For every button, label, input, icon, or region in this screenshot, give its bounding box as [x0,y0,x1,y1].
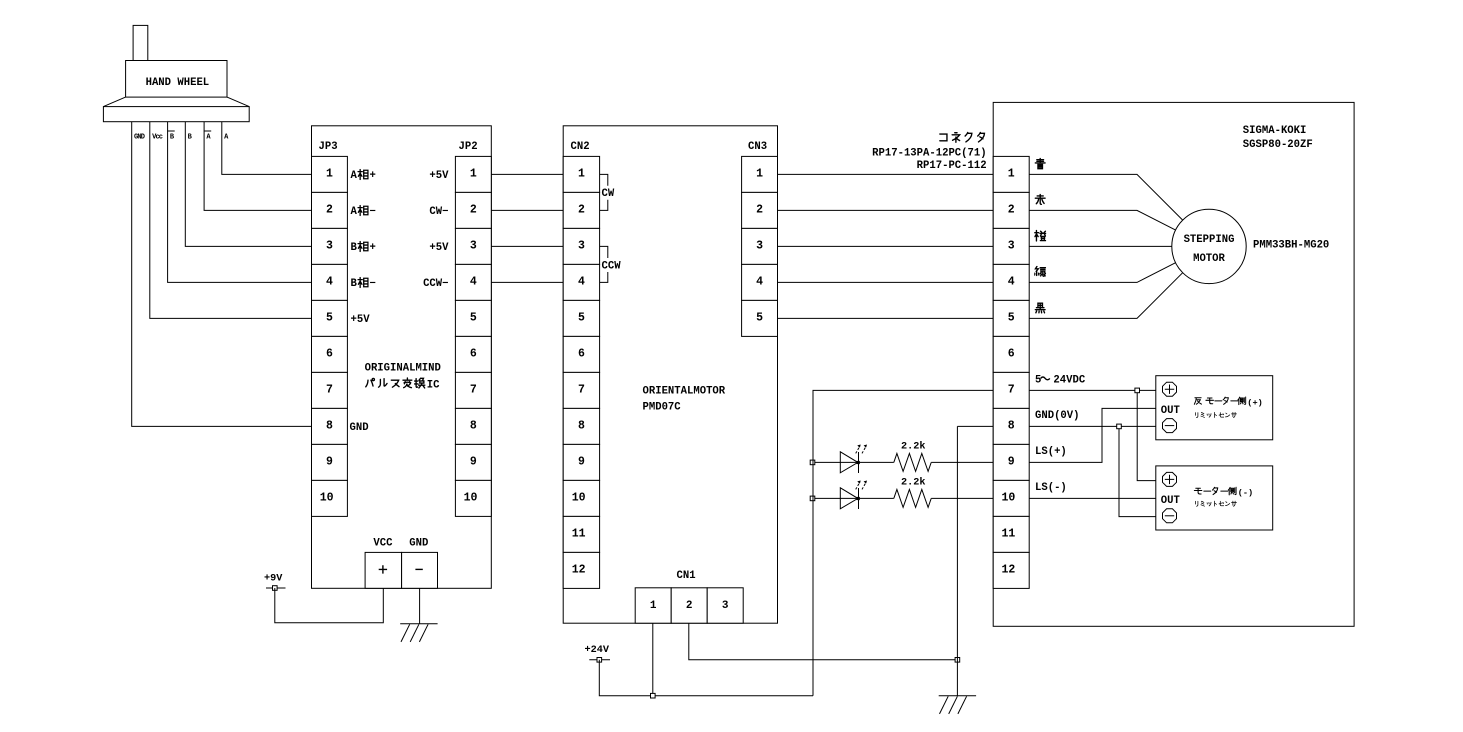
svg-text:5: 5 [470,311,477,324]
svg-text:+5V: +5V [429,170,449,182]
svg-text:6: 6 [470,347,477,360]
svg-text:3: 3 [1008,239,1015,252]
svg-text:1: 1 [578,167,585,180]
svg-text:GND: GND [409,538,428,550]
svg-text:5: 5 [756,311,763,324]
svg-text:7: 7 [470,383,477,396]
svg-text:SIGMA-KOKI: SIGMA-KOKI [1243,125,1307,137]
svg-text:+5V: +5V [351,314,371,326]
svg-text:1: 1 [326,167,333,180]
svg-text:3: 3 [722,600,729,612]
svg-text:A: A [351,206,358,218]
svg-text:8: 8 [578,419,585,432]
svg-text:2: 2 [756,203,763,216]
svg-text:9: 9 [470,455,477,468]
svg-text:2.2k: 2.2k [901,476,925,488]
svg-text:MOTOR: MOTOR [1193,253,1225,265]
svg-text:RP17-13PA-12PC(71): RP17-13PA-12PC(71) [872,147,986,159]
svg-text:CW: CW [602,188,615,200]
svg-text:6: 6 [578,347,585,360]
svg-text:10: 10 [1001,491,1015,504]
svg-text:−: − [370,206,376,218]
svg-text:9: 9 [326,455,333,468]
svg-text:12: 12 [1001,563,1015,576]
svg-text:4: 4 [326,275,333,288]
svg-text:11: 11 [572,527,586,540]
svg-text:10: 10 [572,491,586,504]
svg-text:6: 6 [326,347,333,360]
svg-text:10: 10 [320,491,334,504]
svg-text:12: 12 [572,563,586,576]
svg-text:3: 3 [578,239,585,252]
svg-text:2: 2 [686,600,693,612]
svg-text:GND: GND [134,134,145,142]
svg-text:CN2: CN2 [571,141,590,153]
svg-text:OUT: OUT [1161,405,1181,417]
svg-text:+9V: +9V [264,574,283,585]
svg-text:3: 3 [326,239,333,252]
svg-text:3: 3 [756,239,763,252]
svg-text:2: 2 [578,203,585,216]
svg-text:6: 6 [1008,347,1015,360]
svg-text:LS(+): LS(+) [1035,446,1067,458]
svg-text:ORIENTALMOTOR: ORIENTALMOTOR [643,386,726,398]
svg-text:8: 8 [470,419,477,432]
svg-text:2: 2 [470,203,477,216]
svg-text:PMD07C: PMD07C [643,402,682,414]
svg-text:1: 1 [650,600,657,612]
svg-text:8: 8 [326,419,333,432]
svg-text:4: 4 [578,275,585,288]
svg-text:5: 5 [578,311,585,324]
svg-text:GND(0V): GND(0V) [1035,410,1080,422]
svg-text:2: 2 [1008,203,1015,216]
svg-text:CN1: CN1 [677,570,696,582]
svg-text:GND: GND [350,422,369,434]
svg-text:LS(-): LS(-) [1035,482,1067,494]
svg-text:8: 8 [1008,419,1015,432]
svg-text:(+): (+) [1247,398,1262,408]
svg-text:PMM33BH-MG20: PMM33BH-MG20 [1253,239,1329,251]
svg-text:1: 1 [1008,167,1015,180]
svg-text:9: 9 [578,455,585,468]
svg-text:STEPPING: STEPPING [1184,234,1235,246]
svg-text:A: A [351,170,358,182]
svg-text:B: B [351,242,358,254]
svg-text:+: + [370,242,376,254]
svg-text:5: 5 [1008,311,1015,324]
svg-text:CCW: CCW [602,260,622,272]
svg-text:Vcc: Vcc [152,134,163,142]
svg-text:−: − [370,278,376,290]
svg-text:RP17-PC-112: RP17-PC-112 [917,160,987,172]
svg-text:+: + [370,170,376,182]
svg-text:1: 1 [470,167,477,180]
svg-text:(-): (-) [1238,488,1253,498]
svg-text:JP2: JP2 [459,141,478,153]
svg-text:CCW−: CCW− [423,278,448,290]
svg-text:VCC: VCC [373,538,393,550]
svg-text:HAND WHEEL: HAND WHEEL [146,77,210,89]
svg-text:3: 3 [470,239,477,252]
svg-text:B: B [351,278,358,290]
svg-text:IC: IC [427,380,440,392]
svg-text:+24V: +24V [585,645,610,656]
svg-text:CN3: CN3 [748,141,767,153]
svg-text:7: 7 [578,383,585,396]
svg-text:5: 5 [326,311,333,324]
svg-text:9: 9 [1008,455,1015,468]
svg-text:ORIGINALMIND: ORIGINALMIND [365,363,441,375]
svg-text:JP3: JP3 [319,141,338,153]
svg-text:11: 11 [1001,527,1015,540]
svg-text:4: 4 [1008,275,1015,288]
svg-text:+5V: +5V [429,242,449,254]
svg-text:OUT: OUT [1161,495,1181,507]
svg-text:CW−: CW− [429,206,448,218]
svg-text:2: 2 [326,203,333,216]
svg-text:SGSP80-20ZF: SGSP80-20ZF [1243,139,1313,151]
svg-text:5: 5 [1035,374,1041,386]
svg-text:24VDC: 24VDC [1053,374,1085,386]
svg-text:1: 1 [756,167,763,180]
svg-text:7: 7 [1008,383,1015,396]
svg-text:2.2k: 2.2k [901,440,925,452]
svg-text:10: 10 [464,491,478,504]
svg-text:7: 7 [326,383,333,396]
svg-text:4: 4 [470,275,477,288]
svg-text:4: 4 [756,275,763,288]
